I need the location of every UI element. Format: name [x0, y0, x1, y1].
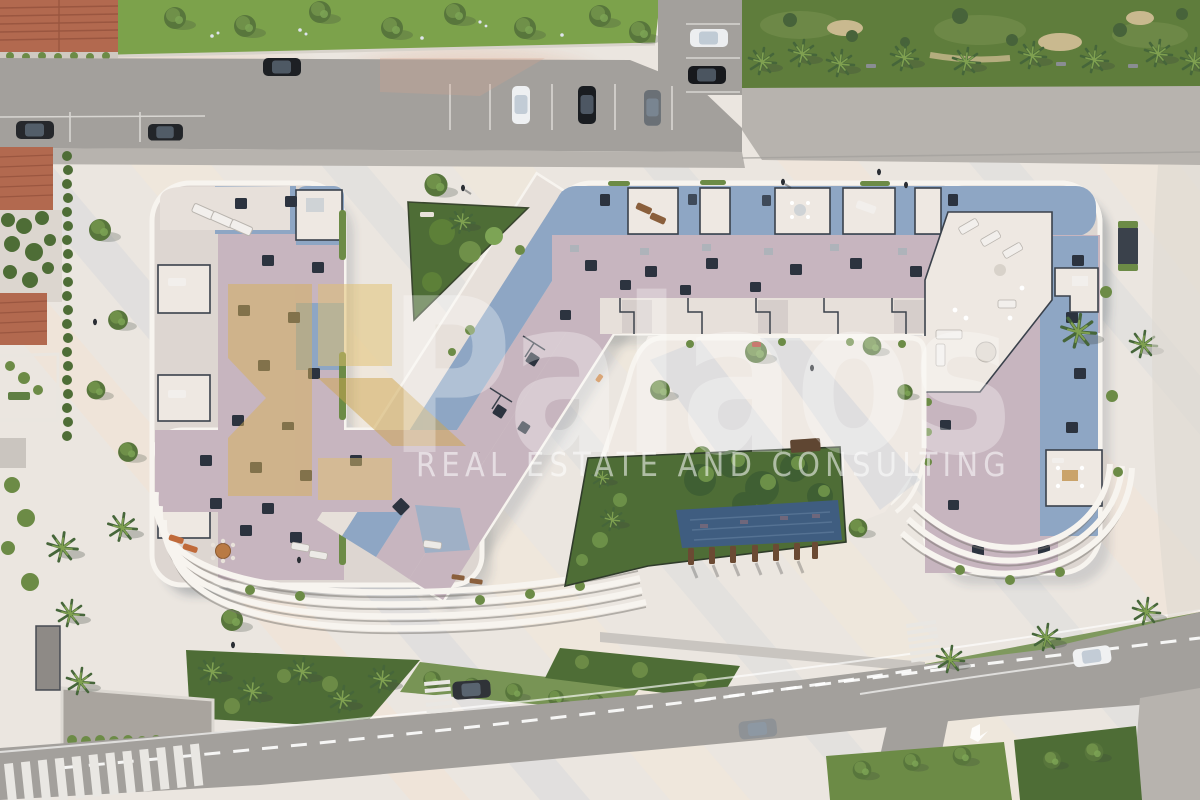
bus-shelter — [1118, 221, 1138, 271]
car-black-driving — [263, 58, 301, 76]
scene: Palaos REAL ESTATE AND CONSULTING — [0, 0, 1200, 800]
roof-terrace-dining — [1046, 450, 1102, 506]
aerial-render-image: Palaos REAL ESTATE AND CONSULTING — [0, 0, 1200, 800]
terracotta-building-top — [0, 0, 118, 61]
parking-ramp — [36, 626, 60, 690]
watermark-tagline-text: REAL ESTATE AND CONSULTING — [416, 445, 1011, 484]
park — [735, 0, 1200, 94]
